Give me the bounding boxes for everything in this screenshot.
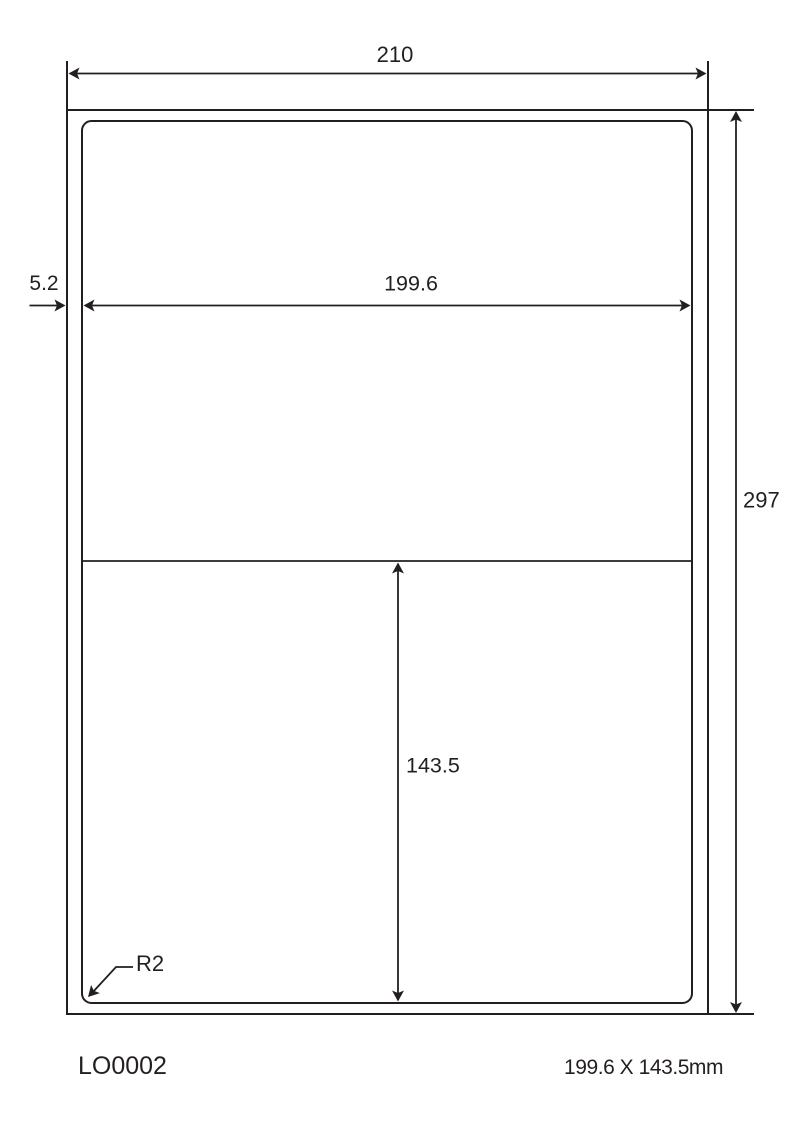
svg-text:199.6: 199.6 (384, 272, 438, 296)
svg-text:297: 297 (743, 488, 780, 513)
svg-text:210: 210 (377, 42, 414, 67)
svg-text:LO0002: LO0002 (78, 1052, 167, 1080)
svg-text:R2: R2 (136, 951, 164, 976)
svg-text:5.2: 5.2 (29, 272, 58, 295)
svg-text:199.6 X 143.5mm: 199.6 X 143.5mm (564, 1056, 723, 1079)
svg-text:143.5: 143.5 (406, 754, 460, 778)
